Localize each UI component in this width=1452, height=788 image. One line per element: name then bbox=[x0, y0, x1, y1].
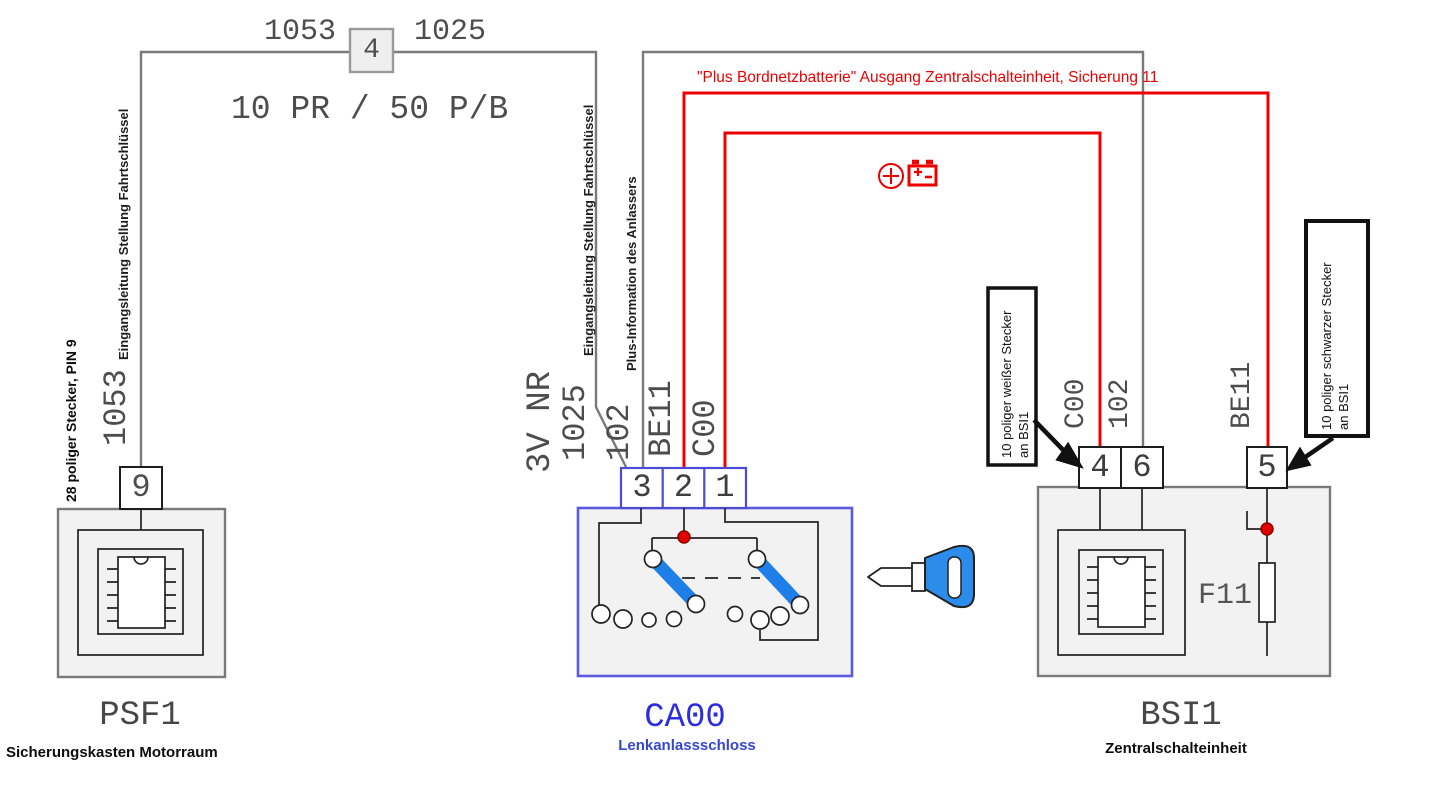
ca00-contact-point-2 bbox=[667, 612, 682, 627]
callout-black-arrowhead bbox=[1290, 451, 1308, 468]
callout-black-line1: 10 poliger schwarzer Stecker bbox=[1318, 262, 1335, 430]
top-wire-label-1025: 1025 bbox=[402, 17, 498, 47]
ca00-wire-be11-label: BE11 bbox=[646, 380, 678, 457]
bsi1-box bbox=[1038, 487, 1330, 676]
battery-plus-mark bbox=[914, 168, 922, 176]
top-wire-label-1053: 1053 bbox=[252, 17, 348, 47]
bsi1-wire-c00-label: C00 bbox=[1063, 379, 1091, 429]
key-collar bbox=[912, 563, 925, 591]
wire-be11-red bbox=[684, 93, 1268, 468]
psf1-name: Sicherungskasten Motorraum bbox=[6, 744, 218, 761]
ca00-switch-pivot-left-top bbox=[645, 551, 662, 568]
bsi1-junction-dot bbox=[1261, 523, 1273, 535]
splice-number: 4 bbox=[350, 29, 393, 72]
bsi1-pin-6: 6 bbox=[1121, 447, 1163, 488]
ca00-position-label: 3V NR bbox=[524, 371, 558, 473]
callout-white-text: 10 poliger weißer Stecker an BSI1 bbox=[998, 311, 1032, 458]
fuse-f11-label: F11 bbox=[1198, 581, 1252, 611]
bsi1-wire-102-label: 102 bbox=[1107, 379, 1135, 429]
bsi1-pin-4: 4 bbox=[1079, 447, 1121, 488]
plus-circle-cross bbox=[883, 168, 899, 184]
ca00-contact-point-1 bbox=[642, 613, 656, 627]
bsi1-pin-5: 5 bbox=[1247, 447, 1287, 488]
key-head-slot bbox=[948, 557, 961, 598]
callout-black-line2: an BSI1 bbox=[1335, 262, 1352, 430]
ca00-wire-1025-function: Eingangsleitung Stellung Fahrtschlüssel bbox=[581, 105, 596, 356]
ca00-switch-pivot-right-top bbox=[749, 551, 766, 568]
psf1-wire-function: Eingangsleitung Stellung Fahrtschlüssel bbox=[116, 109, 131, 360]
ca00-junction-dot bbox=[678, 531, 690, 543]
psf1-connector-note: 28 poliger Stecker, PIN 9 bbox=[63, 339, 79, 502]
ca00-wire-1025-number: 1025 bbox=[560, 384, 592, 461]
ca00-name: Lenkanlassschloss bbox=[587, 737, 787, 754]
ca00-switch-pivot-right-bottom bbox=[792, 597, 809, 614]
power-note: "Plus Bordnetzbatterie" Ausgang Zentrals… bbox=[697, 69, 1158, 87]
ca00-wire-102-function: Plus-Information des Anlassers bbox=[624, 176, 639, 371]
ca00-box bbox=[578, 508, 852, 676]
psf1-code: PSF1 bbox=[65, 699, 215, 733]
ca00-wire-102-number: 102 bbox=[604, 403, 636, 461]
bsi1-name: Zentralschalteinheit bbox=[1076, 740, 1276, 757]
ca00-contact-point-3 bbox=[728, 607, 743, 622]
ca00-code: CA00 bbox=[610, 701, 760, 735]
psf1-pin-number: 9 bbox=[120, 467, 162, 509]
bsi1-wire-be11-label: BE11 bbox=[1229, 362, 1257, 429]
callout-white-line1: 10 poliger weißer Stecker bbox=[998, 311, 1015, 458]
ca00-contact-cylinder-left-a bbox=[592, 605, 610, 623]
fuse-f11-symbol bbox=[1259, 563, 1275, 622]
wire-c00-red bbox=[725, 133, 1100, 468]
battery-icon bbox=[909, 166, 936, 185]
wiring-diagram: 1053 4 1025 10 PR / 50 P/B "Plus Bordnet… bbox=[0, 0, 1452, 788]
ca00-pin-2: 2 bbox=[663, 468, 704, 508]
ca00-wire-c00-label: C00 bbox=[690, 399, 722, 457]
ca00-pin-3: 3 bbox=[621, 468, 663, 508]
bsi1-ic-chip bbox=[1098, 557, 1145, 627]
ca00-pin-1: 1 bbox=[704, 468, 746, 508]
psf1-ic-chip bbox=[118, 557, 165, 628]
ca00-contact-cylinder-right-a bbox=[751, 611, 769, 629]
wire-spec-label: 10 PR / 50 P/B bbox=[231, 93, 508, 126]
ca00-contact-cylinder-left-b bbox=[614, 610, 632, 628]
key-icon bbox=[868, 546, 974, 607]
callout-black-text: 10 poliger schwarzer Stecker an BSI1 bbox=[1318, 262, 1352, 430]
bsi1-code: BSI1 bbox=[1106, 699, 1256, 733]
ca00-contact-cylinder-right-b bbox=[771, 607, 789, 625]
callout-white-line2: an BSI1 bbox=[1015, 311, 1032, 458]
psf1-wire-number: 1053 bbox=[101, 369, 133, 446]
ca00-switch-pivot-left-bottom bbox=[688, 596, 705, 613]
